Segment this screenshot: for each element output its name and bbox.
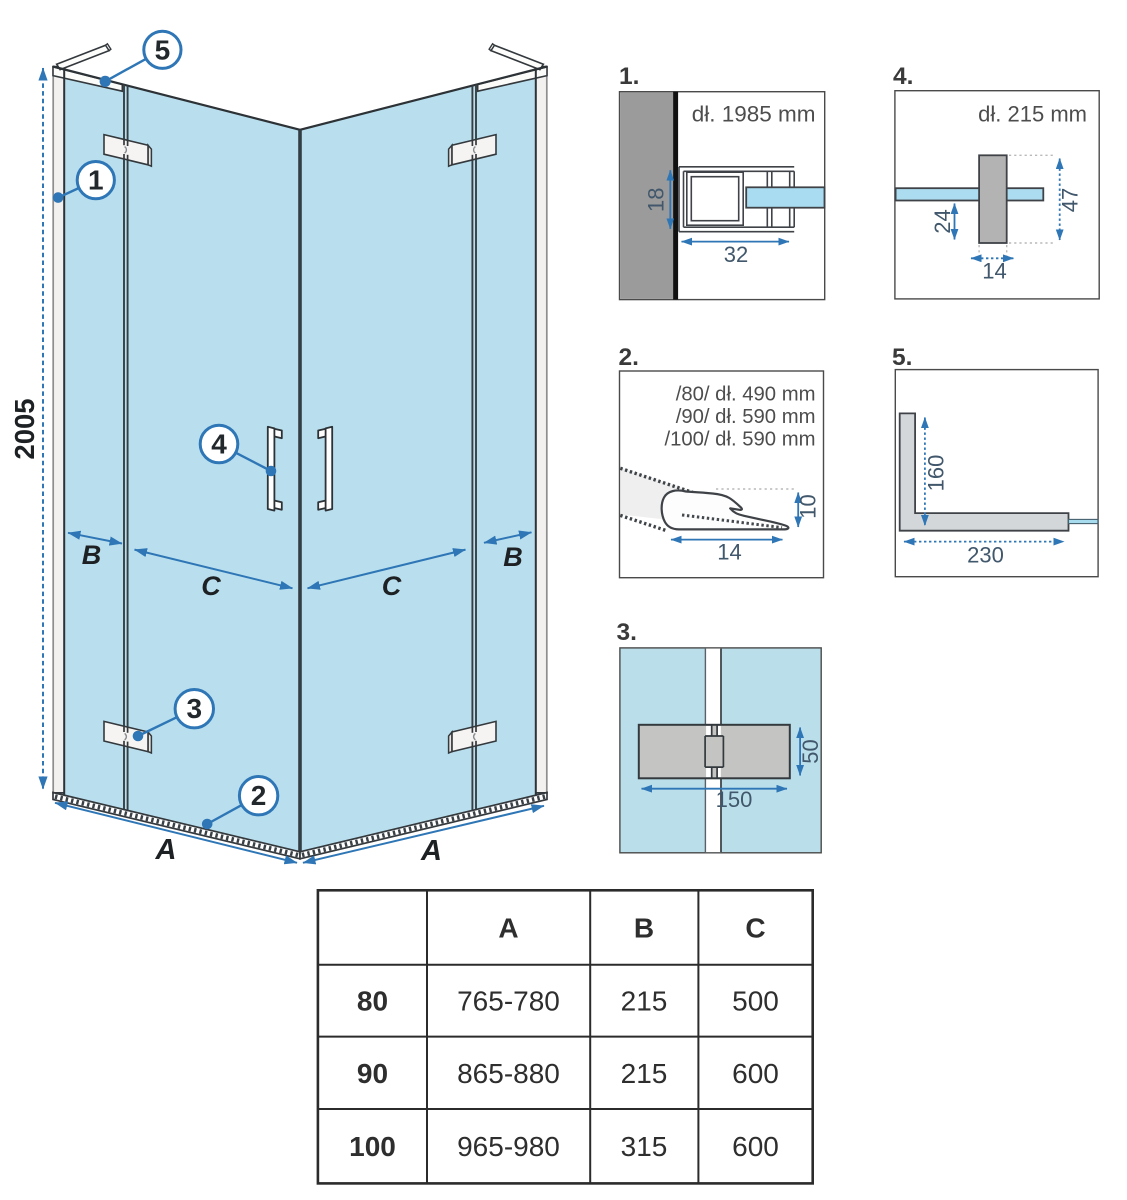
- svg-text:14: 14: [717, 540, 741, 565]
- svg-text:/80/ dł. 490 mm: /80/ dł. 490 mm: [676, 384, 816, 406]
- svg-text:2: 2: [251, 780, 267, 811]
- svg-text:C: C: [201, 571, 221, 601]
- svg-text:4: 4: [211, 429, 227, 460]
- svg-text:5.: 5.: [892, 344, 912, 371]
- svg-text:230: 230: [967, 543, 1004, 568]
- svg-text:315: 315: [621, 1131, 668, 1162]
- svg-text:965-980: 965-980: [457, 1131, 560, 1162]
- svg-text:500: 500: [732, 986, 779, 1017]
- svg-text:1: 1: [88, 165, 104, 196]
- svg-text:C: C: [382, 571, 402, 601]
- svg-text:600: 600: [732, 1131, 779, 1162]
- svg-text:1.: 1.: [619, 63, 639, 90]
- svg-text:100: 100: [349, 1131, 396, 1162]
- svg-text:10: 10: [795, 494, 820, 518]
- svg-text:A: A: [498, 913, 518, 944]
- svg-text:215: 215: [621, 986, 668, 1017]
- svg-text:14: 14: [982, 259, 1006, 284]
- svg-text:160: 160: [923, 455, 948, 492]
- svg-text:2.: 2.: [619, 344, 639, 371]
- svg-text:80: 80: [357, 986, 388, 1017]
- svg-text:B: B: [503, 542, 523, 572]
- svg-text:A: A: [420, 835, 442, 867]
- svg-text:3.: 3.: [617, 619, 637, 646]
- svg-text:765-780: 765-780: [457, 986, 560, 1017]
- svg-text:32: 32: [724, 242, 748, 267]
- svg-text:600: 600: [732, 1058, 779, 1089]
- svg-text:865-880: 865-880: [457, 1058, 560, 1089]
- svg-text:C: C: [745, 913, 765, 944]
- svg-text:3: 3: [187, 693, 203, 724]
- svg-text:50: 50: [798, 739, 823, 763]
- svg-text:/100/ dł. 590 mm: /100/ dł. 590 mm: [664, 429, 815, 451]
- svg-text:B: B: [82, 540, 102, 570]
- svg-text:B: B: [634, 913, 654, 944]
- svg-text:90: 90: [357, 1058, 388, 1089]
- svg-text:dł. 215 mm: dł. 215 mm: [978, 102, 1087, 127]
- svg-text:47: 47: [1057, 188, 1082, 212]
- svg-text:150: 150: [716, 787, 753, 812]
- svg-text:/90/ dł. 590 mm: /90/ dł. 590 mm: [676, 406, 816, 428]
- svg-text:215: 215: [621, 1058, 668, 1089]
- svg-text:18: 18: [643, 187, 668, 211]
- svg-text:4.: 4.: [893, 63, 913, 90]
- svg-text:dł. 1985 mm: dł. 1985 mm: [692, 102, 816, 127]
- svg-text:A: A: [155, 834, 177, 866]
- svg-text:24: 24: [930, 209, 955, 233]
- svg-text:2005: 2005: [9, 398, 40, 459]
- svg-text:5: 5: [155, 34, 171, 65]
